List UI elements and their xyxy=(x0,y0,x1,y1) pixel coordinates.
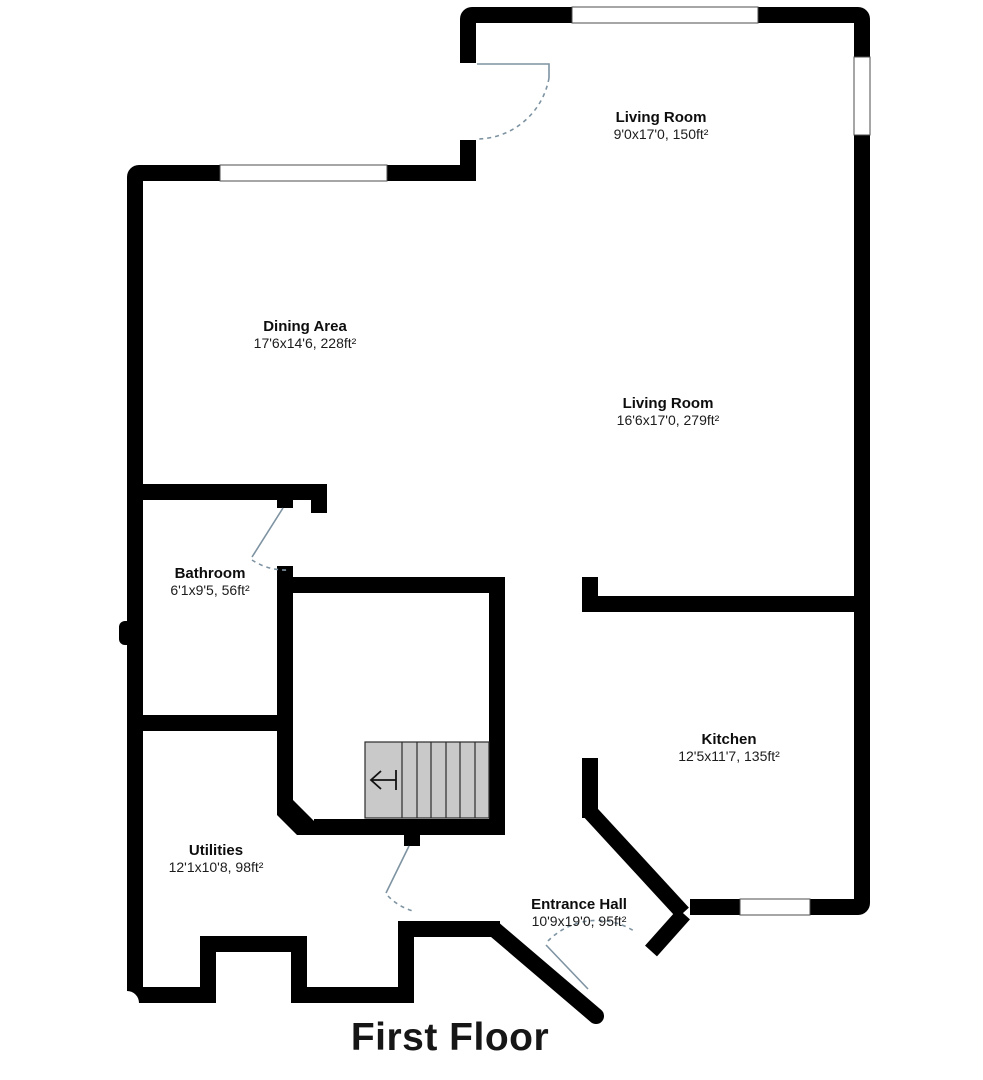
wall-living-kitchen-divider xyxy=(582,596,854,612)
wall-left xyxy=(127,181,143,987)
wall-left-bump xyxy=(119,621,143,645)
wall-bathroom-right xyxy=(277,566,293,798)
door-bathroom-leaf xyxy=(252,508,283,557)
room-label-living-room-main: Living Room 16'6x17'0, 279ft² xyxy=(617,395,720,429)
room-name: Kitchen xyxy=(678,731,780,748)
wall-bathroom-door-stub xyxy=(277,496,293,508)
room-name: Entrance Hall xyxy=(531,896,627,913)
room-label-entrance-hall: Entrance Hall 10'9x19'0, 95ft² xyxy=(531,896,627,930)
door-utilities-swing-arc xyxy=(388,896,413,911)
wall-utilities-right xyxy=(398,921,414,1003)
wall-corner-top-left-living xyxy=(460,7,476,23)
wall-corner-top-right xyxy=(854,7,870,23)
room-dims: 12'1x10'8, 98ft² xyxy=(169,859,264,876)
window-kitchen-bottom xyxy=(740,899,810,915)
room-label-bathroom: Bathroom 6'1x9'5, 56ft² xyxy=(170,565,249,599)
floor-title: First Floor xyxy=(351,1016,549,1060)
wall-living-kitchen-stub xyxy=(582,577,598,596)
wall-stair-right xyxy=(489,577,505,835)
window-dining-top xyxy=(220,165,387,181)
door-living-swing-arc xyxy=(479,78,549,139)
window-living-right xyxy=(854,57,870,135)
room-dims: 16'6x17'0, 279ft² xyxy=(617,412,720,429)
room-label-dining-area: Dining Area 17'6x14'6, 228ft² xyxy=(254,318,357,352)
wall-kitchen-left xyxy=(582,758,598,818)
room-dims: 17'6x14'6, 228ft² xyxy=(254,335,357,352)
wall-divider-end-stub xyxy=(311,500,327,513)
wall-utilities-bottom-right xyxy=(291,987,414,1003)
room-name: Dining Area xyxy=(254,318,357,335)
room-label-kitchen: Kitchen 12'5x11'7, 135ft² xyxy=(678,731,780,765)
wall-living-left-upper xyxy=(460,23,476,63)
room-name: Utilities xyxy=(169,842,264,859)
room-name: Living Room xyxy=(614,109,709,126)
door-utilities-leaf xyxy=(386,846,409,893)
windows xyxy=(220,7,870,915)
room-dims: 10'9x19'0, 95ft² xyxy=(531,913,627,930)
room-name: Bathroom xyxy=(170,565,249,582)
wall-corner-bottom-left-utilities xyxy=(127,987,143,1003)
floor-plan-svg xyxy=(0,0,983,1080)
wall-bathroom-bottom xyxy=(127,715,293,731)
room-name: Living Room xyxy=(617,395,720,412)
staircase xyxy=(365,742,489,818)
wall-living-left-lower xyxy=(460,140,476,181)
wall-stair-top xyxy=(277,577,505,593)
wall-entrance-diagonal-left xyxy=(494,929,596,1016)
room-label-living-room-upper: Living Room 9'0x17'0, 150ft² xyxy=(614,109,709,143)
wall-dining-bathroom-divider xyxy=(127,484,327,500)
wall-utilities-notch-top xyxy=(200,936,307,952)
wall-stair-door-stub xyxy=(404,835,420,846)
room-label-utilities: Utilities 12'1x10'8, 98ft² xyxy=(169,842,264,876)
doors xyxy=(252,64,634,989)
room-dims: 9'0x17'0, 150ft² xyxy=(614,126,709,143)
floor-plan: Living Room 9'0x17'0, 150ft² Living Room… xyxy=(0,0,983,1080)
door-living-leaf xyxy=(477,64,549,78)
wall-corner-top-left-dining xyxy=(127,165,143,181)
window-living-top xyxy=(572,7,758,23)
room-dims: 12'5x11'7, 135ft² xyxy=(678,748,780,765)
wall-right xyxy=(854,23,870,899)
wall-stair-bottom xyxy=(314,819,505,835)
room-dims: 6'1x9'5, 56ft² xyxy=(170,582,249,599)
wall-stair-left-diagonal xyxy=(277,794,314,835)
wall-corner-bottom-right-kitchen xyxy=(854,899,870,915)
wall-utilities-notch-left xyxy=(200,950,216,1003)
wall-entrance-diagonal-right-jamb xyxy=(651,914,684,951)
